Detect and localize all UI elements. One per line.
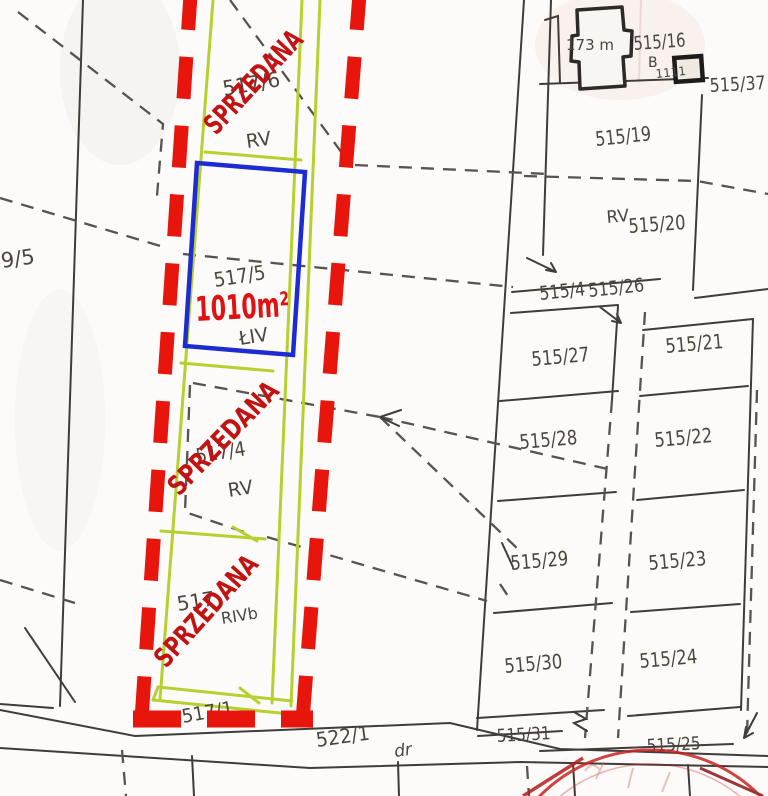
map-canvas: 9/5 517/6 RV 517/5 ŁIV 517/4 RV 517 RIVb… bbox=[0, 0, 768, 796]
soil-label-rv-3: RV bbox=[606, 206, 631, 228]
soil-label-rv-1: RV bbox=[245, 128, 273, 153]
parcel-label-515-23: 515/23 bbox=[647, 546, 707, 575]
parcel-label-515-24: 515/24 bbox=[638, 644, 698, 673]
parcel-label-515-29: 515/29 bbox=[509, 546, 569, 575]
soil-label-rv-2: RV bbox=[226, 476, 254, 502]
parcel-label-515-30: 515/30 bbox=[503, 649, 563, 678]
round-stamp bbox=[495, 750, 768, 796]
parcel-label-515-16: 515/16 bbox=[633, 29, 686, 55]
parcel-label-515-31: 515/31 bbox=[496, 723, 551, 747]
parcel-label-515-22: 515/22 bbox=[653, 423, 713, 452]
road-type-label: dr bbox=[393, 740, 414, 762]
building-area-note: 173 m bbox=[566, 36, 614, 54]
sold-label-1: SPRZEDANA bbox=[197, 23, 310, 141]
parcel-label-515-26: 515/26 bbox=[587, 274, 645, 302]
parcel-label-515-21: 515/21 bbox=[664, 329, 724, 358]
road-number-label: 522/1 bbox=[314, 721, 371, 752]
parcel-label-515-4: 515/4 bbox=[538, 278, 586, 305]
parcel-label-515-37: 515/37 bbox=[709, 72, 766, 97]
parcel-label-515-28: 515/28 bbox=[518, 425, 578, 454]
parcel-label-9-5: 9/5 bbox=[0, 244, 36, 272]
parcel-label-515-27: 515/27 bbox=[530, 342, 590, 371]
parcel-label-515-25: 515/25 bbox=[646, 733, 701, 757]
parcel-label-515-20: 515/20 bbox=[628, 210, 687, 238]
cadastral-map: 9/5 517/6 RV 517/5 ŁIV 517/4 RV 517 RIVb… bbox=[0, 0, 768, 796]
plot-area-label: 1010m² bbox=[194, 285, 290, 330]
parcel-label-515-19: 515/19 bbox=[594, 121, 652, 151]
